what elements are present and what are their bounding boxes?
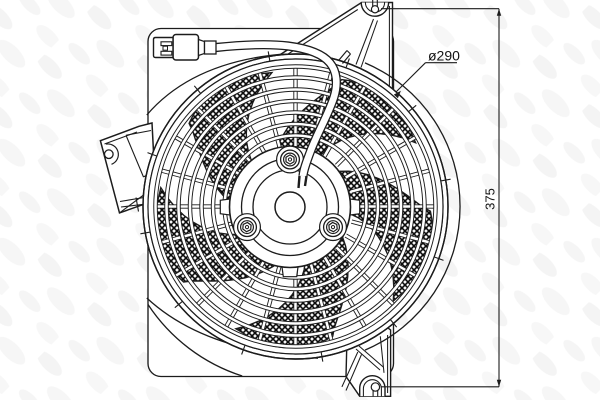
svg-text:375: 375 [483, 188, 498, 210]
svg-text:ø290: ø290 [428, 48, 460, 64]
